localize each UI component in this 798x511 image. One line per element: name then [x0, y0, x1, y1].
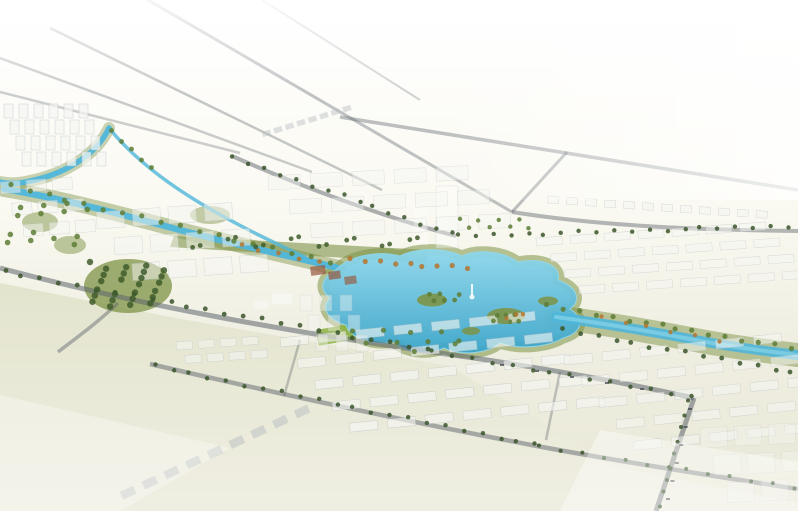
tree: [109, 297, 115, 303]
building-block: [91, 136, 100, 150]
building-block: [31, 136, 40, 150]
tree: [407, 345, 412, 350]
tree: [344, 238, 349, 243]
tree: [279, 321, 284, 326]
tree: [316, 328, 321, 333]
tree: [386, 211, 390, 215]
building-block: [52, 152, 61, 166]
tree: [684, 227, 688, 231]
tree: [276, 251, 281, 256]
green-patch: [54, 236, 86, 254]
tree: [751, 226, 755, 230]
tree: [706, 332, 711, 337]
car: [570, 376, 574, 378]
top-right-haze: [430, 0, 798, 200]
tree: [51, 236, 57, 242]
building-block: [150, 233, 179, 252]
tree: [508, 224, 512, 228]
building-block: [114, 236, 143, 255]
building-block: [612, 282, 638, 292]
tree: [298, 323, 303, 328]
tree: [147, 300, 153, 306]
tree: [476, 218, 480, 222]
building-block: [19, 104, 28, 118]
tree: [624, 321, 628, 325]
building-block: [85, 120, 94, 134]
tree: [495, 313, 500, 318]
tree: [693, 333, 697, 337]
building-block: [16, 136, 25, 150]
tree: [109, 128, 114, 133]
tree: [309, 254, 314, 259]
tree: [467, 225, 471, 229]
building-block: [10, 120, 19, 134]
tree: [138, 275, 144, 281]
tree: [531, 368, 535, 372]
tree: [261, 386, 265, 390]
tree: [599, 314, 603, 318]
tree: [393, 261, 398, 266]
tree: [577, 308, 582, 313]
tree: [560, 326, 565, 331]
building-block: [666, 261, 692, 271]
masterplan-aerial-rendering: [0, 0, 798, 511]
tree: [317, 244, 322, 249]
lakefront-hall: [272, 294, 292, 304]
tree: [628, 340, 633, 345]
tree: [72, 242, 78, 248]
tree: [240, 242, 245, 247]
tree: [514, 439, 518, 443]
tree: [544, 302, 549, 307]
building-block: [320, 295, 332, 311]
tree: [158, 220, 163, 225]
building-block: [340, 295, 352, 311]
tree: [198, 243, 203, 248]
building-block: [646, 280, 672, 290]
tree: [722, 334, 727, 339]
tree: [456, 232, 460, 236]
tree: [28, 238, 34, 244]
lake-island: [462, 327, 480, 335]
building-block: [661, 204, 672, 212]
tree: [487, 225, 491, 229]
tree: [786, 225, 790, 229]
building-block: [268, 174, 301, 190]
tree: [789, 346, 794, 351]
tree: [129, 147, 134, 152]
building-block: [67, 152, 76, 166]
tree: [123, 264, 129, 270]
tree: [419, 264, 424, 269]
building-block: [52, 177, 73, 190]
tree: [408, 261, 413, 266]
tree: [107, 303, 113, 309]
tree: [81, 201, 86, 206]
tree: [666, 229, 670, 233]
tree: [296, 234, 301, 239]
tree: [450, 263, 455, 268]
building-block: [550, 252, 576, 262]
tree: [324, 242, 329, 247]
car: [640, 388, 644, 390]
building-block: [242, 336, 259, 345]
building-block: [353, 220, 386, 236]
tree: [118, 276, 124, 282]
tree: [717, 339, 721, 343]
building-block: [37, 152, 46, 166]
tree: [153, 362, 157, 366]
building-block: [239, 254, 268, 273]
tree: [241, 314, 246, 319]
building-block: [185, 354, 202, 363]
tree: [456, 338, 461, 343]
tree: [328, 260, 333, 265]
building-block: [55, 120, 64, 134]
building-block: [82, 152, 91, 166]
tree: [701, 354, 706, 359]
tree: [161, 267, 167, 273]
tree: [594, 313, 599, 318]
building-block: [311, 222, 344, 238]
lakefront-pavilion: [344, 275, 357, 285]
tree: [350, 405, 354, 409]
tree: [686, 399, 690, 403]
tree: [197, 229, 202, 234]
tree: [514, 312, 518, 316]
building-block: [737, 209, 748, 217]
building-block: [700, 259, 726, 269]
tree: [158, 273, 164, 279]
building-block: [642, 203, 653, 211]
tree: [230, 154, 234, 158]
building-block: [97, 152, 106, 166]
tree: [297, 257, 302, 262]
building-block: [207, 353, 224, 362]
tree: [547, 370, 551, 374]
tree: [31, 230, 37, 236]
building-block: [632, 264, 658, 274]
tree: [580, 451, 584, 455]
masterplan-rendering-stage: [0, 0, 798, 511]
tree: [270, 244, 275, 249]
tree: [509, 233, 513, 237]
building-block: [310, 172, 343, 188]
building-block: [604, 200, 615, 208]
tree: [432, 298, 437, 303]
tree: [719, 356, 724, 361]
tree: [350, 328, 355, 333]
tree: [101, 207, 106, 212]
tree: [559, 231, 563, 235]
building-block: [49, 221, 70, 234]
tree: [527, 231, 531, 235]
tree: [588, 377, 592, 381]
tree: [434, 263, 439, 268]
tree: [594, 230, 598, 234]
building-block: [64, 104, 73, 118]
tree: [139, 213, 144, 218]
building-block: [373, 194, 406, 210]
building-block: [328, 315, 340, 331]
building-block: [75, 219, 96, 232]
building-block: [348, 315, 360, 331]
tree: [143, 262, 149, 268]
building-block: [748, 272, 774, 282]
building-block: [618, 247, 644, 257]
tree: [94, 286, 100, 292]
tree: [497, 218, 501, 222]
building-block: [652, 245, 678, 255]
tree: [369, 337, 374, 342]
building-block: [34, 104, 43, 118]
building-block: [22, 152, 31, 166]
tree: [380, 244, 385, 249]
tree: [774, 368, 779, 373]
tree: [402, 215, 406, 219]
tree: [342, 192, 346, 196]
tree: [644, 324, 648, 328]
building-block: [718, 208, 729, 216]
tree: [412, 349, 417, 354]
tree: [326, 188, 330, 192]
tree: [289, 236, 294, 241]
tree: [532, 441, 536, 445]
tree: [15, 213, 21, 219]
tree: [347, 256, 352, 261]
tree: [739, 339, 744, 344]
tree: [452, 298, 457, 303]
tree: [756, 340, 761, 345]
building-block: [598, 266, 624, 276]
tree: [537, 444, 541, 448]
tree: [260, 316, 265, 321]
tree: [156, 279, 162, 285]
building-block: [394, 168, 427, 184]
building-block: [686, 243, 712, 253]
tree: [576, 229, 580, 233]
tree: [425, 339, 430, 344]
building-block: [198, 339, 215, 348]
building-block: [720, 240, 746, 250]
tree: [141, 269, 147, 275]
building-block: [25, 120, 34, 134]
tree: [253, 244, 258, 249]
tree: [470, 356, 474, 360]
tree: [4, 268, 9, 273]
building-block: [584, 250, 610, 260]
tree: [74, 234, 80, 240]
tree: [8, 182, 13, 187]
tree: [697, 225, 701, 229]
tree: [56, 281, 61, 286]
building-block: [316, 335, 328, 351]
tree: [665, 347, 670, 352]
tree: [85, 207, 91, 213]
tree: [788, 370, 793, 375]
lakefront-pavilion: [328, 270, 341, 280]
tree: [457, 292, 462, 297]
tree: [511, 363, 515, 367]
tree: [378, 258, 383, 263]
tree: [394, 340, 399, 345]
tree: [612, 228, 616, 232]
tree: [526, 226, 530, 230]
tree: [226, 237, 231, 242]
tree: [648, 228, 652, 232]
building-block: [768, 423, 796, 444]
building-block: [251, 350, 268, 359]
building-block: [714, 275, 740, 285]
car: [688, 408, 692, 410]
tree: [492, 232, 496, 236]
tree: [596, 333, 601, 338]
building-block: [754, 238, 780, 248]
tree: [289, 251, 294, 256]
tree: [127, 302, 133, 308]
tree: [683, 349, 688, 354]
building-block: [756, 211, 767, 219]
tree: [120, 210, 125, 215]
building-block: [536, 236, 562, 246]
tree: [370, 204, 374, 208]
building-block: [564, 268, 590, 278]
building-block: [168, 259, 197, 278]
tree: [103, 266, 109, 272]
building-block: [176, 341, 193, 350]
tree: [170, 299, 175, 304]
tree: [521, 312, 525, 316]
tree: [205, 376, 209, 380]
building-block: [229, 351, 246, 360]
building-block: [132, 208, 161, 227]
tree: [649, 387, 653, 391]
tree: [507, 319, 512, 324]
building-block: [204, 257, 233, 276]
car: [684, 426, 688, 428]
tree: [5, 240, 11, 246]
tree: [186, 370, 190, 374]
tree: [294, 177, 298, 181]
tree: [516, 319, 521, 324]
tree: [772, 341, 777, 346]
building-block: [578, 284, 604, 294]
tree: [242, 384, 246, 388]
tree: [75, 283, 80, 288]
tree: [647, 345, 652, 350]
tree: [18, 205, 24, 211]
building-block: [734, 256, 760, 266]
car: [605, 382, 609, 384]
tree: [172, 368, 176, 372]
tree: [491, 319, 496, 324]
tree: [628, 385, 632, 389]
building-block: [40, 120, 49, 134]
tree: [369, 410, 373, 414]
tree: [439, 329, 444, 334]
building-block: [61, 136, 70, 150]
building-block: [768, 254, 794, 264]
building-block: [331, 196, 364, 212]
tree: [129, 295, 135, 301]
tree: [517, 217, 521, 221]
tree: [119, 139, 124, 144]
tree: [18, 273, 23, 278]
tree: [139, 158, 144, 163]
tree: [406, 415, 410, 419]
lakefront-hall: [254, 301, 268, 309]
building-block: [782, 270, 798, 280]
tree: [233, 235, 238, 240]
tree: [363, 259, 368, 264]
tree: [567, 372, 571, 376]
tree: [335, 330, 340, 335]
tree: [679, 425, 683, 429]
tree: [429, 348, 433, 352]
tree: [136, 281, 142, 287]
tree: [561, 307, 566, 312]
tree: [427, 292, 432, 297]
tree: [490, 361, 494, 365]
tree: [280, 389, 284, 393]
building-block: [336, 335, 348, 351]
building-block: [680, 277, 706, 287]
tree: [499, 437, 503, 441]
tree: [437, 291, 442, 296]
tree: [352, 236, 357, 241]
tree: [112, 291, 118, 297]
tree: [715, 226, 719, 230]
tree: [92, 292, 98, 298]
tree: [28, 188, 33, 193]
tree: [481, 431, 485, 435]
tree: [407, 237, 412, 242]
tree: [350, 336, 355, 341]
tree: [672, 326, 677, 331]
building-block: [680, 205, 691, 213]
tree: [37, 275, 42, 280]
building-block: [70, 120, 79, 134]
tree: [504, 316, 508, 320]
tree: [578, 331, 583, 336]
tree: [317, 397, 321, 401]
tree: [683, 414, 687, 418]
tree: [41, 203, 47, 209]
tree: [442, 298, 447, 303]
tree: [190, 245, 195, 250]
building-block: [289, 198, 322, 214]
tree: [47, 191, 52, 196]
tree: [474, 234, 478, 238]
building-block: [76, 136, 85, 150]
tree: [559, 449, 563, 453]
building-block: [49, 104, 58, 118]
tree: [87, 259, 93, 265]
building-block: [352, 170, 385, 186]
tree: [541, 233, 545, 237]
building-block: [604, 231, 630, 241]
tree: [363, 341, 368, 346]
tree: [425, 421, 429, 425]
building-block: [700, 427, 728, 448]
tree: [298, 394, 302, 398]
car: [500, 364, 504, 366]
tree: [222, 312, 227, 317]
building-block: [220, 338, 237, 347]
tree: [381, 328, 386, 333]
tree: [689, 328, 694, 333]
tree: [278, 173, 282, 177]
